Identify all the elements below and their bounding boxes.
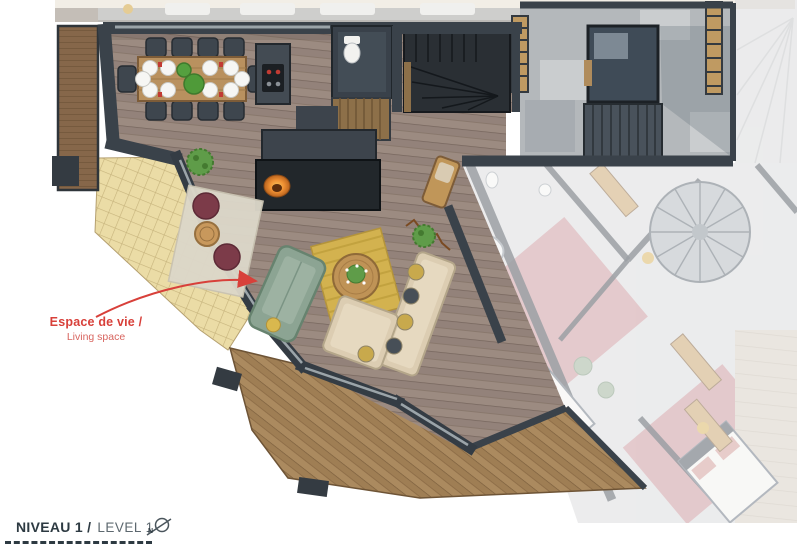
pouf [193, 193, 219, 219]
bathroom [332, 26, 392, 98]
wood-balustrade [706, 2, 722, 94]
winder-staircase [404, 24, 510, 112]
north-letter: N [148, 528, 153, 535]
stair-hall [512, 2, 733, 161]
hall-staircase [584, 104, 662, 158]
elevator-shaft [584, 26, 658, 102]
pouf [214, 244, 240, 270]
centerpiece-plant [347, 265, 365, 283]
title-block: NIVEAU 1 / LEVEL 1 [16, 519, 154, 535]
coffee-table-round [195, 222, 219, 246]
cooktop [262, 64, 284, 92]
north-arrow-icon: N [143, 514, 177, 538]
wall-segment [392, 26, 402, 112]
toilet [344, 43, 360, 63]
pouf [574, 357, 592, 375]
pouf [598, 382, 614, 398]
side-table [642, 252, 654, 264]
living-space-annotation: Espace de vie / Living space [36, 315, 156, 344]
balcony-planter [52, 156, 79, 186]
kitchen-island [256, 44, 290, 104]
round-dining-low-table [333, 254, 379, 300]
living-space-label-en: Living space [36, 331, 156, 344]
floor-plan-page: Espace de vie / Living space NIVEAU 1 / … [0, 0, 800, 553]
side-table [697, 422, 709, 434]
potted-plant [187, 149, 213, 175]
living-space-label-fr: Espace de vie / [36, 315, 156, 331]
level-title-fr: NIVEAU 1 / [16, 519, 91, 535]
floor-plan-rendering [0, 0, 800, 553]
sink [539, 184, 551, 196]
title-dashed-line [5, 541, 152, 544]
toilet [486, 172, 498, 188]
spiral-staircase [650, 182, 750, 282]
potted-plant [413, 225, 435, 247]
